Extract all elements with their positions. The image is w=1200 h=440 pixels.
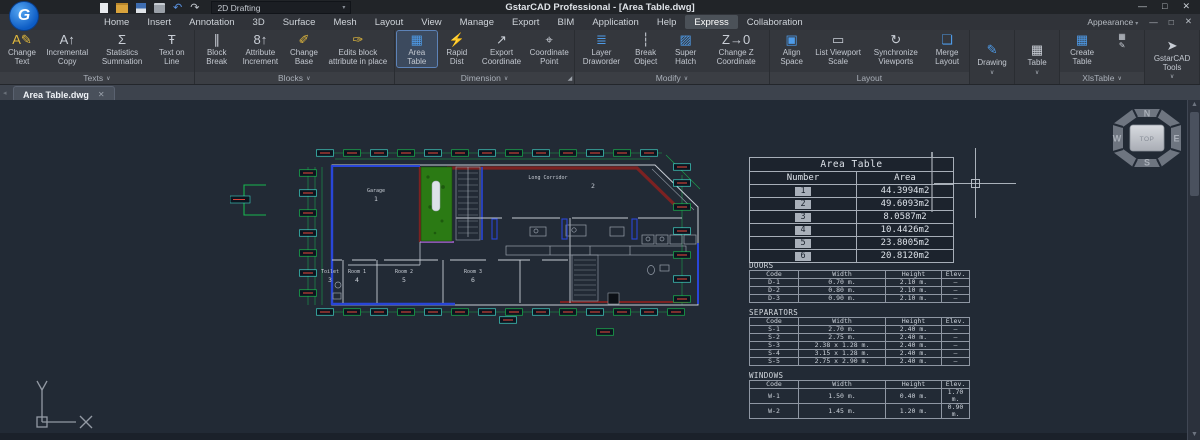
table-row: 410.4426m2 (750, 224, 954, 237)
merge-layout-icon: ❏ (941, 32, 953, 48)
menu-tabs: HomeInsertAnnotation3DSurfaceMeshLayoutV… (95, 15, 812, 29)
ribbon-group-label-modify[interactable]: Modify∨ (575, 72, 768, 84)
floor-plan: Garage Long Corridor Toilet Room 1 Room … (230, 115, 720, 345)
svg-text:2: 2 (591, 182, 595, 190)
spec-table-separators: SEPARATORSCodeWidthHeightElev.S-12.70 m.… (749, 309, 970, 366)
view-cube[interactable]: TOP N E S W (1110, 105, 1184, 171)
dimension-lines (308, 153, 700, 312)
dialog-launcher-icon[interactable]: ◢ (568, 75, 573, 82)
statistics-summation-icon: Σ (118, 32, 126, 48)
canvas-bottom-strip (0, 433, 1187, 440)
menu-tab-home[interactable]: Home (95, 15, 138, 29)
area-number-chip: 2 (795, 200, 810, 210)
table-row: 38.0587m2 (750, 211, 954, 224)
spec-col-header: Width (799, 271, 886, 279)
room-label-toilet: Toilet (321, 269, 339, 275)
svg-text:4: 4 (355, 276, 359, 284)
vertical-scrollbar[interactable]: ▲ ▼ (1187, 100, 1200, 440)
chevron-down-icon: ∨ (1170, 72, 1174, 80)
create-table-icon: ▦ (1076, 32, 1088, 48)
menu-tab-export[interactable]: Export (503, 15, 548, 29)
area-table: Area TableNumberArea144.3994m2249.6093m2… (749, 157, 954, 263)
room-label-room-3: Room 3 (464, 269, 482, 275)
list-viewport-scale-icon: ▭ (832, 32, 844, 48)
align-space-icon: ▣ (786, 32, 798, 48)
new-file-icon[interactable] (100, 3, 108, 13)
table-icon: ▦ (1031, 42, 1043, 58)
menu-tab-application[interactable]: Application (583, 15, 647, 29)
document-tab-bar: ◂ Area Table.dwg ✕ (0, 84, 1200, 101)
spec-table-title: SEPARATORS (749, 309, 970, 317)
menu-tab-manage[interactable]: Manage (451, 15, 503, 29)
spec-tables: DOORSCodeWidthHeightElev.D-10.70 m.2.10 … (749, 262, 970, 425)
ribbon-group-label-blocks[interactable]: Blocks∨ (195, 72, 394, 84)
ribbon-button-create-table[interactable]: ▦Create Table (1062, 31, 1102, 67)
chevron-down-icon: ∨ (106, 75, 110, 82)
ribbon-button-edits-block-attribute-in-place[interactable]: ✑Edits block attribute in place (324, 31, 392, 67)
dimension-value-labels (300, 150, 691, 336)
area-value-cell: 8.0587m2 (857, 211, 954, 224)
room-label-long-corridor: Long Corridor (528, 175, 567, 181)
ucs-icon (12, 376, 98, 434)
table-row: 249.6093m2 (750, 198, 954, 211)
rapid-dist-icon: ⚡ (449, 32, 465, 48)
export-coordinate-icon: ↗ (496, 32, 507, 48)
ribbon-group-gstarcad-tools: ➤GstarCAD Tools∨ (1145, 30, 1200, 84)
spec-col-header: Elev. (942, 381, 970, 389)
ribbon-button-change-base[interactable]: ✐Change Base (284, 31, 324, 67)
spec-table-title: WINDOWS (749, 372, 970, 380)
svg-text:6: 6 (471, 276, 475, 284)
table-row: D-10.70 m.2.10 m.— (750, 279, 970, 287)
ribbon-button-attribute-increment[interactable]: 8↑Attribute Increment (237, 31, 284, 67)
spec-col-header: Height (886, 381, 942, 389)
ribbon-button-area-table[interactable]: ▦Area Table (397, 31, 437, 67)
print-icon[interactable] (154, 3, 165, 13)
menu-tab-annotation[interactable]: Annotation (180, 15, 243, 29)
view-cube-east: E (1173, 134, 1179, 144)
area-number-chip: 6 (795, 252, 810, 262)
room-label-room-2: Room 2 (395, 269, 413, 275)
stairs (456, 167, 598, 301)
table-row: 523.8005m2 (750, 237, 954, 250)
menu-tab-view[interactable]: View (412, 15, 450, 29)
ribbon-button-gstarcad-tools[interactable]: ➤GstarCAD Tools∨ (1147, 31, 1197, 84)
spec-col-header: Width (799, 381, 886, 389)
spec-col-header: Code (750, 381, 799, 389)
table-row: S-22.75 m.2.40 m.— (750, 334, 970, 342)
ribbon-button-super-hatch[interactable]: ▨Super Hatch (666, 31, 706, 67)
close-button[interactable]: ✕ (1182, 1, 1190, 12)
quick-access-toolbar: ↶↷2D Drafting▾ (100, 2, 351, 13)
scroll-up-icon[interactable]: ▲ (1188, 100, 1200, 110)
doc-minimize-button[interactable]: — (1149, 17, 1158, 27)
drawing-canvas[interactable]: Garage Long Corridor Toilet Room 1 Room … (0, 100, 1200, 440)
ribbon-group-label-texts[interactable]: Texts∨ (0, 72, 194, 84)
ribbon: A✎Change TextA↑Incremental CopyΣStatisti… (0, 30, 1200, 84)
ribbon-group-dimension: ▦Area Table⚡Rapid Dist↗Export Coordinate… (395, 30, 575, 84)
xlstable-mini-icons: ▦ ✎ (1118, 32, 1126, 48)
spec-table-title: DOORS (749, 262, 970, 270)
edit-block-attribute-icon: ✑ (352, 32, 363, 48)
chevron-down-icon: ∨ (684, 75, 688, 82)
chevron-down-icon: ∨ (306, 75, 310, 82)
ribbon-button-layer-draworder[interactable]: ≣Layer Draworder (577, 31, 625, 67)
ribbon-button-block-break[interactable]: ∥Block Break (197, 31, 237, 67)
table-row: S-43.15 x 1.28 m.2.40 m.— (750, 350, 970, 358)
spec-col-header: Code (750, 318, 799, 326)
menu-tab-express[interactable]: Express (685, 15, 737, 29)
ribbon-button-xlstable-mini-icons[interactable]: ▦ ✎ (1102, 31, 1142, 48)
title-bar: ↶↷2D Drafting▾ GstarCAD Professional - [… (0, 0, 1200, 14)
change-z-coordinate-icon: Z→0 (722, 32, 750, 48)
ribbon-button-table[interactable]: ▦Table∨ (1017, 31, 1057, 84)
ribbon-button-merge-layout[interactable]: ❏Merge Layout (927, 31, 967, 67)
ribbon-button-align-space[interactable]: ▣Align Space (772, 31, 812, 67)
menu-tab-collaboration[interactable]: Collaboration (738, 15, 812, 29)
svg-text:TOP: TOP (1140, 136, 1155, 143)
ribbon-group-label-dimension[interactable]: Dimension∨◢ (395, 72, 574, 84)
area-value-cell: 23.8005m2 (857, 237, 954, 250)
ribbon-button-coordinate-point[interactable]: ⌖Coordinate Point (526, 31, 572, 67)
area-table-icon: ▦ (411, 32, 423, 48)
spec-col-header: Width (799, 318, 886, 326)
area-number-chip: 3 (795, 213, 810, 223)
doc-restore-button[interactable]: □ (1169, 17, 1174, 27)
spec-col-header: Elev. (942, 271, 970, 279)
area-number-chip: 5 (795, 239, 810, 249)
menu-tab-mesh[interactable]: Mesh (324, 15, 365, 29)
table-row: S-52.75 x 2.90 m.2.40 m.— (750, 358, 970, 366)
ribbon-group-label-layout[interactable]: Layout (770, 72, 969, 84)
courtyard-hatch (421, 167, 452, 241)
attribute-increment-icon: 8↑ (253, 32, 267, 48)
ribbon-group-xlstable: ▦Create Table▦ ✎XlsTable∨ (1060, 30, 1145, 84)
gstarcad-logo-icon[interactable]: G (9, 1, 39, 31)
scrollbar-thumb[interactable] (1190, 112, 1199, 196)
chevron-down-icon: ∨ (1035, 68, 1039, 76)
area-value-cell: 10.4426m2 (857, 224, 954, 237)
drawing-icon: ✎ (987, 42, 998, 58)
document-tab-label: Area Table.dwg (23, 90, 89, 100)
area-number-chip: 1 (795, 187, 810, 197)
table-row: 144.3994m2 (750, 185, 954, 198)
ribbon-button-text-on-line[interactable]: ŦText on Line (152, 31, 192, 67)
menu-tab-insert[interactable]: Insert (138, 15, 180, 29)
change-text-icon: A✎ (12, 32, 32, 48)
ribbon-button-synchronize-viewports[interactable]: ↻Synchronize Viewports (865, 31, 928, 67)
chevron-down-icon: ∨ (990, 68, 994, 76)
gstarcad-window: { "titlebar": { "title": "GstarCAD Profe… (0, 0, 1200, 440)
spec-table-windows: WINDOWSCodeWidthHeightElev.W-11.50 m.0.4… (749, 372, 970, 419)
redo-icon[interactable]: ↷ (190, 3, 199, 13)
view-cube-south: S (1144, 158, 1150, 168)
window-controls: — □ ✕ (1138, 1, 1190, 12)
coordinate-point-icon: ⌖ (546, 32, 553, 48)
menu-right-controls: Appearance▾ — □ ✕ (1087, 16, 1192, 27)
layer-draworder-icon: ≣ (596, 32, 607, 48)
crosshair-pickbox (971, 179, 980, 188)
change-base-icon: ✐ (299, 32, 310, 48)
ribbon-button-statistics-summation[interactable]: ΣStatistics Summation (92, 31, 151, 67)
ribbon-button-list-viewport-scale[interactable]: ▭List Viewport Scale (812, 31, 865, 67)
ribbon-button-export-coordinate[interactable]: ↗Export Coordinate (477, 31, 526, 67)
ribbon-button-break-object[interactable]: ┆Break Object (626, 31, 666, 67)
table-row: D-20.80 m.2.10 m.— (750, 287, 970, 295)
scroll-down-icon[interactable]: ▼ (1188, 430, 1200, 440)
block-break-icon: ∥ (213, 32, 220, 48)
spec-col-header: Code (750, 271, 799, 279)
synchronize-viewports-icon: ↻ (890, 32, 901, 48)
furniture (333, 219, 696, 304)
minimize-button[interactable]: — (1138, 1, 1147, 12)
area-value-cell: 49.6093m2 (857, 198, 954, 211)
reference-bracket (230, 185, 266, 215)
break-object-icon: ┆ (642, 32, 650, 48)
chevron-down-icon: ▾ (1135, 21, 1138, 27)
tab-nav-left-icon[interactable]: ◂ (3, 89, 7, 97)
save-icon[interactable] (136, 3, 146, 13)
table-row: W-21.45 m.1.20 m.0.90 m. (750, 404, 970, 419)
ribbon-group-blocks: ∥Block Break8↑Attribute Increment✐Change… (195, 30, 395, 84)
workspace-dropdown[interactable]: 2D Drafting▾ (211, 1, 351, 14)
area-value-cell: 20.8120m2 (857, 250, 954, 263)
area-table-col-number: Number (750, 172, 857, 185)
ribbon-group-modify: ≣Layer Draworder┆Break Object▨Super Hatc… (575, 30, 769, 84)
ribbon-button-change-z-coordinate[interactable]: Z→0Change Z Coordinate (706, 31, 767, 67)
ribbon-group-layout: ▣Align Space▭List Viewport Scale↻Synchro… (770, 30, 970, 84)
table-row: 620.8120m2 (750, 250, 954, 263)
menu-tab-help[interactable]: Help (648, 15, 686, 29)
table-row: S-12.70 m.2.40 m.— (750, 326, 970, 334)
spec-col-header: Height (886, 318, 942, 326)
menu-tab-bim[interactable]: BIM (548, 15, 583, 29)
spec-col-header: Height (886, 271, 942, 279)
menu-bar: HomeInsertAnnotation3DSurfaceMeshLayoutV… (0, 14, 1200, 30)
view-cube-west: W (1113, 134, 1122, 144)
appearance-menu[interactable]: Appearance▾ (1087, 17, 1138, 27)
menu-tab-3d[interactable]: 3D (244, 15, 274, 29)
area-table-title: Area Table (750, 158, 954, 172)
ribbon-button-incremental-copy[interactable]: A↑Incremental Copy (42, 31, 92, 67)
text-on-line-icon: Ŧ (168, 32, 176, 48)
room-label-garage: Garage (367, 188, 385, 194)
ribbon-button-rapid-dist[interactable]: ⚡Rapid Dist (437, 31, 477, 67)
ribbon-group-table: ▦Table∨ (1015, 30, 1060, 84)
area-value-cell: 44.3994m2 (857, 185, 954, 198)
area-number-chip: 4 (795, 226, 810, 236)
svg-text:1: 1 (374, 195, 378, 203)
workspace-label: 2D Drafting (217, 3, 260, 13)
ribbon-button-drawing[interactable]: ✎Drawing∨ (972, 31, 1012, 84)
spec-col-header: Elev. (942, 318, 970, 326)
menu-tab-layout[interactable]: Layout (366, 15, 413, 29)
incremental-copy-icon: A↑ (60, 32, 75, 48)
chevron-down-icon: ∨ (504, 75, 508, 82)
tab-close-icon[interactable]: ✕ (98, 90, 105, 99)
menu-tab-surface[interactable]: Surface (274, 15, 325, 29)
open-file-icon[interactable] (116, 3, 128, 13)
doc-close-button[interactable]: ✕ (1185, 16, 1192, 27)
super-hatch-icon: ▨ (679, 32, 691, 48)
table-row: D-30.90 m.2.10 m.— (750, 295, 970, 303)
ribbon-group-label-xlstable[interactable]: XlsTable∨ (1060, 72, 1144, 84)
ribbon-group-texts: A✎Change TextA↑Incremental CopyΣStatisti… (0, 30, 195, 84)
svg-text:3: 3 (328, 276, 332, 284)
room-label-room-1: Room 1 (348, 269, 366, 275)
table-row: S-32.38 x 1.28 m.2.40 m.— (750, 342, 970, 350)
spec-table-doors: DOORSCodeWidthHeightElev.D-10.70 m.2.10 … (749, 262, 970, 303)
ribbon-group-drawing: ✎Drawing∨ (970, 30, 1015, 84)
undo-icon[interactable]: ↶ (173, 3, 182, 13)
ribbon-button-change-text[interactable]: A✎Change Text (2, 31, 42, 67)
gstarcad-tools-icon: ➤ (1167, 38, 1178, 54)
view-cube-north: N (1144, 109, 1151, 119)
maximize-button[interactable]: □ (1162, 1, 1167, 12)
table-row: W-11.50 m.0.40 m.1.70 m. (750, 389, 970, 404)
chevron-down-icon: ▾ (342, 4, 345, 11)
chevron-down-icon: ∨ (1117, 75, 1121, 82)
svg-text:5: 5 (402, 276, 406, 284)
